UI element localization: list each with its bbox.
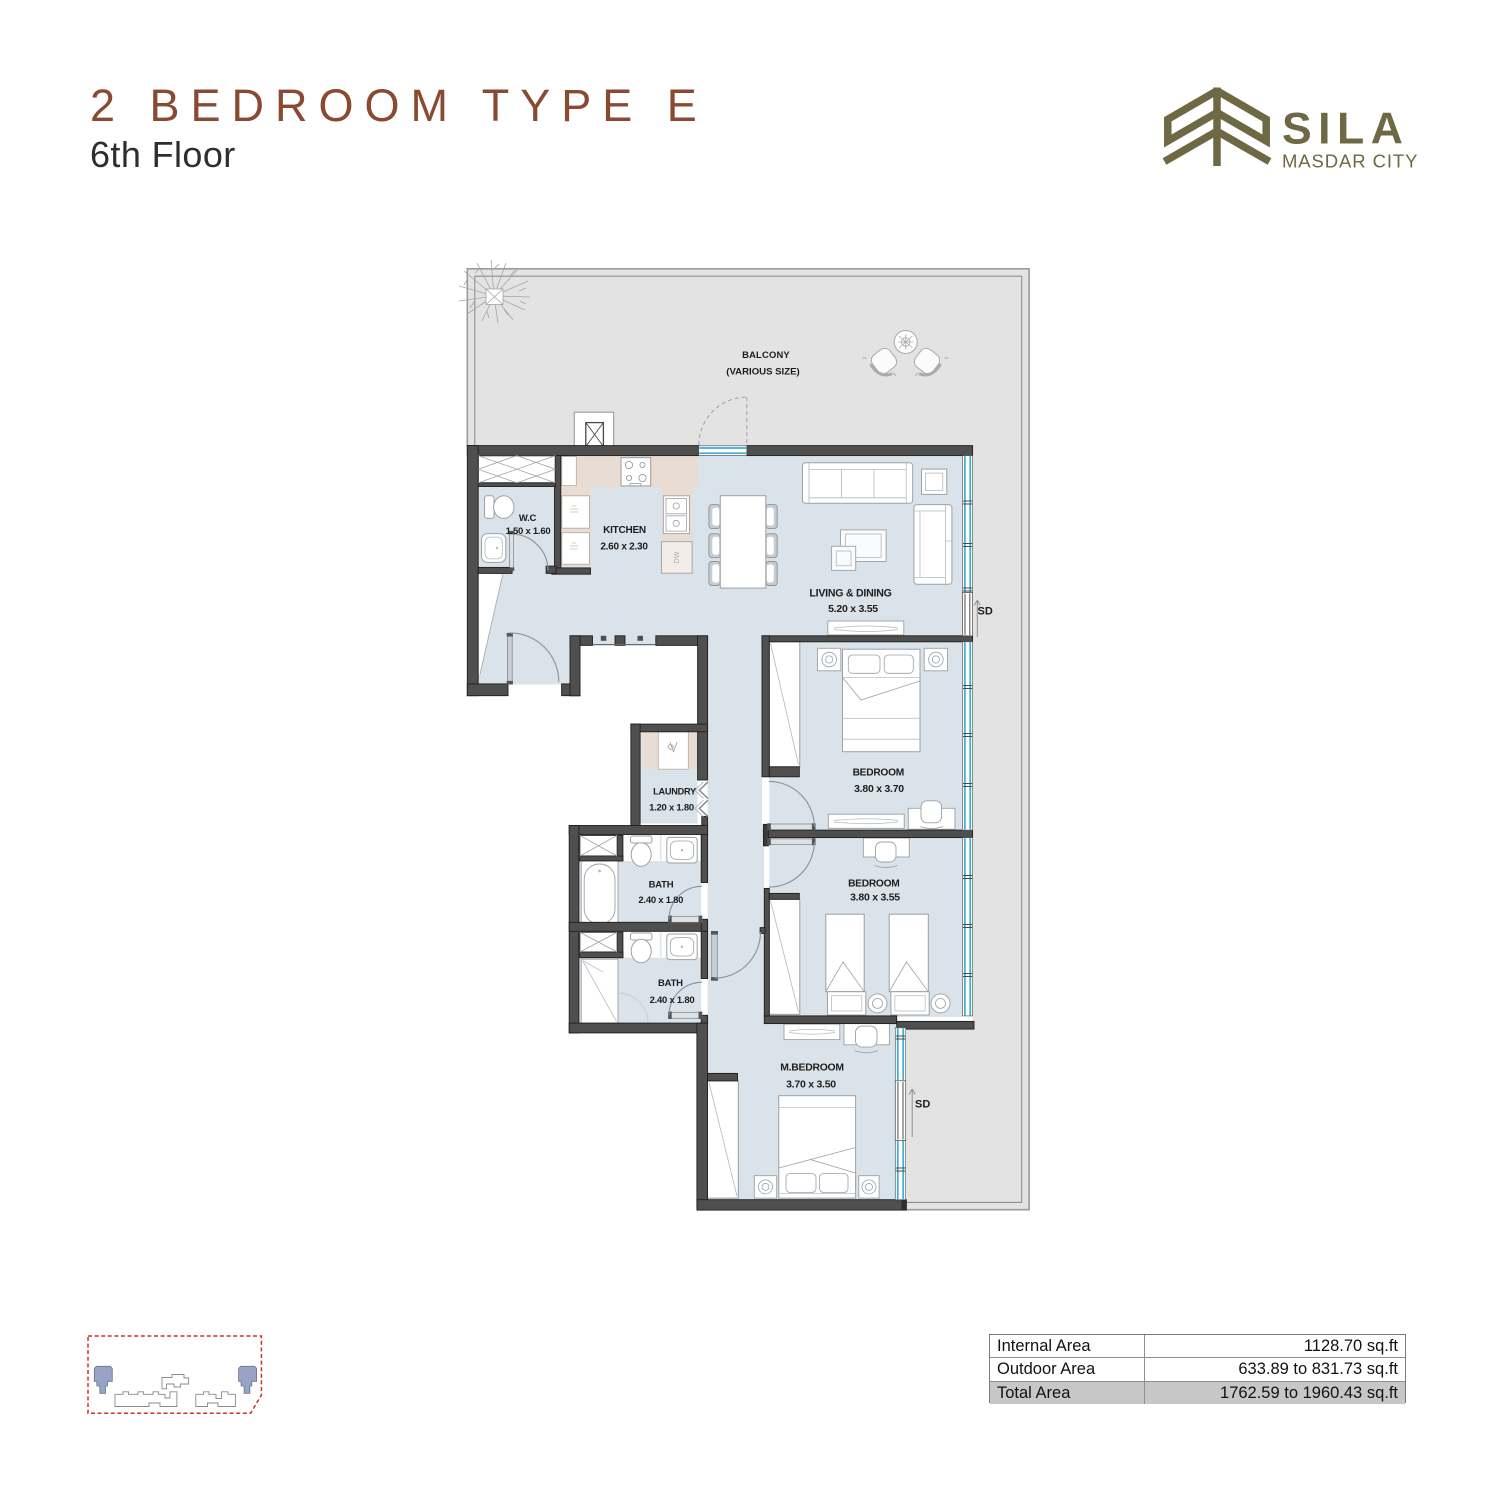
svg-text:BEDROOM: BEDROOM [853, 768, 904, 779]
svg-text:2.60 x 2.30: 2.60 x 2.30 [600, 542, 648, 553]
svg-text:(VARIOUS SIZE): (VARIOUS SIZE) [726, 367, 799, 378]
svg-text:SD: SD [915, 1099, 930, 1111]
svg-text:3.70 x 3.50: 3.70 x 3.50 [786, 1079, 836, 1091]
svg-text:1.20 x 1.80: 1.20 x 1.80 [649, 803, 694, 814]
svg-text:3.80 x 3.70: 3.80 x 3.70 [854, 783, 904, 795]
svg-text:M.BEDROOM: M.BEDROOM [780, 1063, 844, 1074]
svg-text:DW: DW [674, 551, 681, 563]
svg-text:LAUNDRY: LAUNDRY [653, 787, 696, 797]
svg-text:3.80 x 3.55: 3.80 x 3.55 [850, 892, 900, 904]
svg-text:BALCONY: BALCONY [742, 349, 790, 360]
svg-text:2.40 x 1.80: 2.40 x 1.80 [650, 995, 695, 1006]
svg-text:LIVING & DINING: LIVING & DINING [809, 588, 891, 600]
svg-text:BATH: BATH [649, 880, 674, 891]
svg-text:5.20 x 3.55: 5.20 x 3.55 [828, 603, 878, 615]
svg-text:SD: SD [978, 606, 993, 618]
svg-text:1.50 x 1.60: 1.50 x 1.60 [506, 526, 551, 537]
svg-text:BATH: BATH [658, 978, 683, 989]
svg-text:2.40 x 1.80: 2.40 x 1.80 [638, 895, 683, 906]
svg-text:BEDROOM: BEDROOM [848, 879, 899, 890]
svg-text:W.C: W.C [519, 513, 537, 524]
svg-text:KITCHEN: KITCHEN [603, 525, 646, 536]
